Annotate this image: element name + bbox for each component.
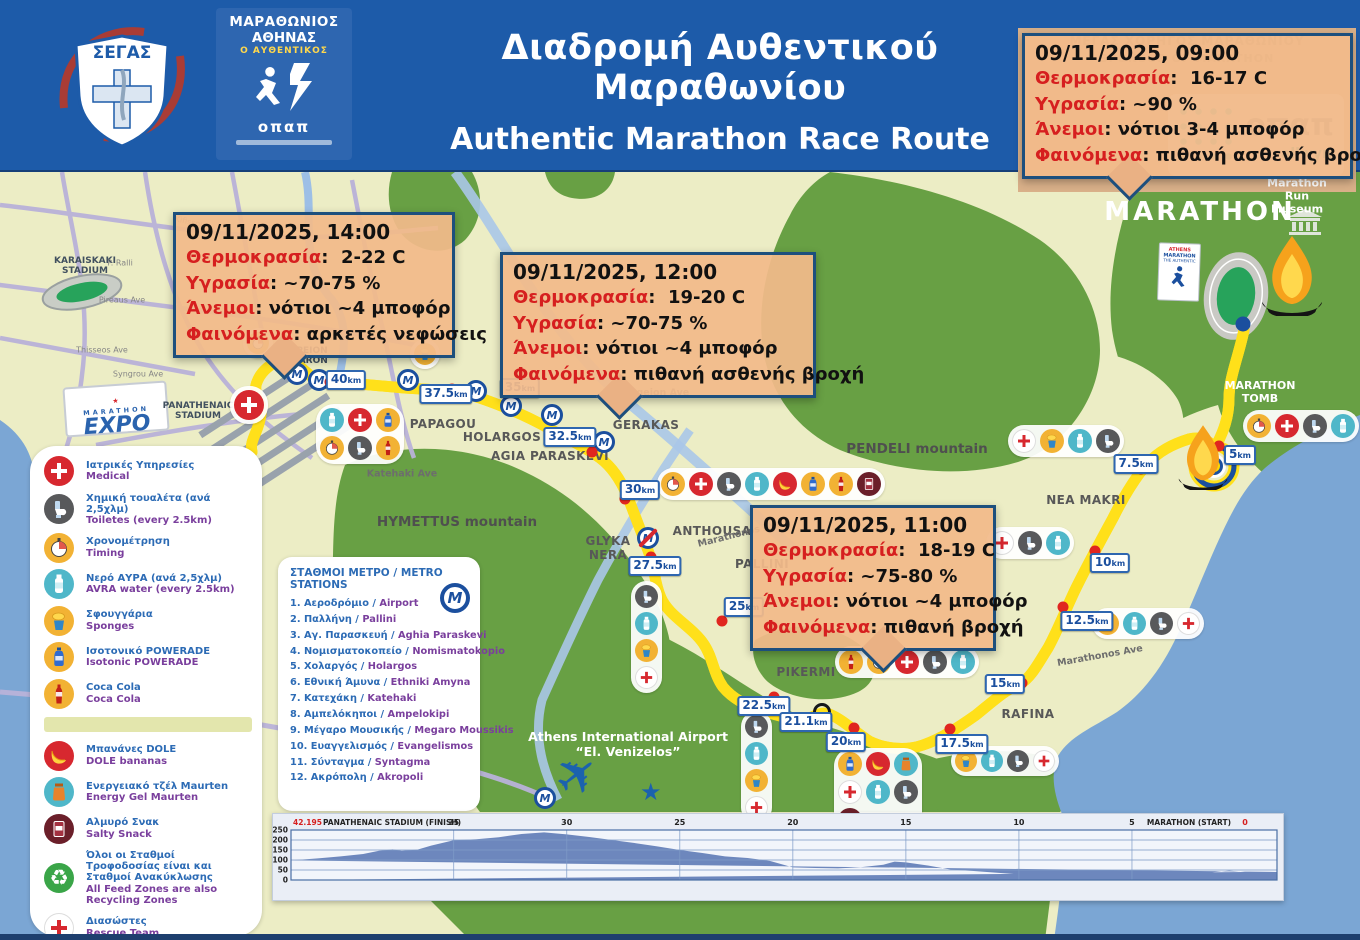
weather-row-humidity: Υγρασία: ~90 % <box>1035 92 1340 118</box>
weather-datetime: 09/11/2025, 14:00 <box>186 220 442 244</box>
svg-text:30: 30 <box>561 818 573 827</box>
toilet-icon <box>44 494 74 524</box>
medical-icon <box>1033 750 1055 772</box>
metro-station-icon: M <box>397 369 419 391</box>
toilet-icon <box>1018 531 1042 555</box>
legend-item-banana: Μπανάνες DOLEDOLE bananas <box>44 741 262 771</box>
legend-label-gr: Νερό ΑΥΡΑ (ανά 2,5χλμ) <box>86 573 244 584</box>
weather-row-temperature: Θερμοκρασία: 19-20 C <box>513 285 803 311</box>
km-marker-37.5: 37.5km <box>419 384 472 404</box>
race-logo-line1: ΜΑΡΑΘΩΝΙΟΣ <box>216 14 352 30</box>
feed-station <box>986 527 1074 559</box>
toilet-icon <box>348 436 372 460</box>
toilet-icon <box>745 715 768 738</box>
km-marker-21.1: 21.1km <box>779 712 832 732</box>
legend-item-timing: ΧρονομέτρησηTiming <box>44 533 262 563</box>
svg-text:42.195: 42.195 <box>293 818 322 827</box>
weather-row-temperature: Θερμοκρασία: 2-22 C <box>186 245 442 271</box>
metro-station-row: 10. Ευαγγελισμός / Evangelismos <box>290 739 472 755</box>
legend-item-gel: Ενεργειακό τζέλ MaurtenEnergy Gel Maurte… <box>44 777 262 807</box>
medical-icon <box>689 472 713 496</box>
expo-star-icon: ★ <box>112 397 119 405</box>
cola-icon <box>839 650 863 674</box>
race-logo-tagline <box>236 140 332 145</box>
metro-logo-icon: M <box>440 583 470 613</box>
weather-row-humidity: Υγρασία: ~70-75 % <box>186 271 442 297</box>
metro-station-row: 7. Κατεχάκη / Katehaki <box>290 691 472 707</box>
water-icon <box>320 408 344 432</box>
elevation-profile-chart: 05010015020025042.195PANATHENAIC STADIUM… <box>272 813 1284 901</box>
weather-row-phenomena: Φαινόμενα: αρκετές νεφώσεις <box>186 322 442 348</box>
km-marker-32.5: 32.5km <box>543 427 596 447</box>
km-marker-30: 30km <box>620 480 660 500</box>
toilet-icon <box>635 585 658 608</box>
svg-text:15: 15 <box>900 818 912 827</box>
sponge-icon <box>745 769 768 792</box>
sponge-icon <box>635 639 658 662</box>
runner-icon <box>216 56 352 118</box>
race-logo-line3: Ο ΑΥΘΕΝΤΙΚΟΣ <box>216 46 352 56</box>
closed-station-slash-icon <box>638 528 658 548</box>
legend-item-water: Νερό ΑΥΡΑ (ανά 2,5χλμ)AVRA water (every … <box>44 569 262 599</box>
weather-row-humidity: Υγρασία: ~75-80 % <box>763 564 983 590</box>
legend-label-gr: Χρονομέτρηση <box>86 536 244 547</box>
svg-text:35: 35 <box>448 818 460 827</box>
medical-icon <box>635 666 658 689</box>
timing-icon <box>1247 414 1271 438</box>
weather-box-1200: 09/11/2025, 12:00Θερμοκρασία: 19-20 CΥγρ… <box>500 252 816 398</box>
recycle-icon: ♻ <box>44 863 74 893</box>
feed-station <box>1008 425 1124 457</box>
feed-station <box>1243 410 1359 442</box>
legend-label-gr: Όλοι οι Σταθμοί Τροφοδοσίας είναι και Στ… <box>86 850 244 884</box>
sponge-icon <box>44 606 74 636</box>
marathon-expo-badge: ★ MARATHON EXPO <box>62 380 169 437</box>
weather-datetime: 09/11/2025, 12:00 <box>513 260 803 284</box>
water-icon <box>951 650 975 674</box>
legend-label-en: DOLE bananas <box>86 756 244 767</box>
sponge-icon <box>1040 429 1064 453</box>
legend-label-en: Toiletes (every 2.5km) <box>86 515 244 526</box>
metro-station-row: 3. Αγ. Παρασκευή / Aghia Paraskevi <box>290 628 472 644</box>
timing-icon <box>320 436 344 460</box>
toilet-icon <box>1303 414 1327 438</box>
legend-label-en: Sponges <box>86 621 244 632</box>
metro-station-row: 11. Σύνταγμα / Syntagma <box>290 755 472 771</box>
metro-station-row: 8. Αμπελόκηποι / Ampelokipi <box>290 707 472 723</box>
km-marker-12.5: 12.5km <box>1060 611 1113 631</box>
marathon-route-poster: ΣΕΓΑΣ ΜΑΡΑΘΩΝΙΟΣ ΑΘΗΝΑΣ Ο ΑΥΘΕΝΤΙΚΟΣ οπα… <box>0 0 1360 940</box>
km-marker-7.5: 7.5km <box>1114 454 1159 474</box>
metro-stations-panel: ΣΤΑΘΜΟΙ ΜΕΤΡΟ / METRO STATIONS M 1. Αερο… <box>278 557 480 811</box>
feed-station <box>230 386 268 424</box>
feed-point-dot <box>945 724 956 735</box>
water-icon <box>44 569 74 599</box>
powerade-icon <box>44 642 74 672</box>
svg-text:20: 20 <box>787 818 799 827</box>
water-icon <box>1068 429 1092 453</box>
legend-label-en: AVRA water (every 2.5km) <box>86 584 244 595</box>
svg-text:50: 50 <box>278 866 288 875</box>
timing-icon <box>661 472 685 496</box>
svg-text:PANATHENAIC STADIUM (FINISH): PANATHENAIC STADIUM (FINISH) <box>323 818 461 827</box>
svg-text:5: 5 <box>1129 818 1135 827</box>
legend-label-en: Coca Cola <box>86 694 244 705</box>
medical-icon <box>348 408 372 432</box>
title-english: Authentic Marathon Race Route <box>400 122 1040 157</box>
weather-box-0900: 09/11/2025, 09:00Θερμοκρασία: 16-17 CΥγρ… <box>1022 33 1353 179</box>
medical-icon <box>1177 612 1200 635</box>
race-logo-line2: ΑΘΗΝΑΣ <box>216 30 352 46</box>
legend-label-gr: Χημική τουαλέτα (ανά 2,5χλμ) <box>86 493 244 515</box>
segas-logo: ΣΕΓΑΣ <box>46 10 198 158</box>
legend-label-en: All Feed Zones are also Recycling Zones <box>86 884 244 906</box>
feed-point-dot <box>717 616 728 627</box>
weather-datetime: 09/11/2025, 09:00 <box>1035 41 1340 65</box>
metro-station-row: 6. Εθνική Άμυνα / Ethniki Amyna <box>290 675 472 691</box>
legend-label-gr: Μπανάνες DOLE <box>86 744 244 755</box>
toilet-icon <box>923 650 947 674</box>
runner-icon <box>1167 263 1190 290</box>
feed-station <box>316 404 404 464</box>
medical-icon <box>838 780 862 804</box>
title-greek: Διαδρομή Αυθεντικού Μαραθωνίου <box>400 28 1040 108</box>
legend-label-en: Salty Snack <box>86 829 244 840</box>
toilet-icon <box>1096 429 1120 453</box>
metro-station-row: 5. Χολαργός / Holargos <box>290 659 472 675</box>
metro-station-icon: M <box>534 787 556 809</box>
legend-label-gr: Διασώστες <box>86 916 244 927</box>
poster-title: Διαδρομή Αυθεντικού Μαραθωνίου Authentic… <box>400 28 1040 157</box>
medical-icon <box>1275 414 1299 438</box>
weather-row-temperature: Θερμοκρασία: 16-17 C <box>1035 66 1340 92</box>
toilet-icon <box>1150 612 1173 635</box>
legend-label-gr: Αλμυρό Σνακ <box>86 817 244 828</box>
legend-item-powerade: Ισοτονικό POWERADEIsotonic POWERADE <box>44 642 262 672</box>
water-icon <box>635 612 658 635</box>
torch-icon-tomb <box>1177 422 1229 494</box>
svg-text:MARATHON (START): MARATHON (START) <box>1147 818 1231 827</box>
km-marker-40: 40km <box>326 370 366 390</box>
svg-text:25: 25 <box>674 818 686 827</box>
medical-icon <box>44 456 74 486</box>
svg-text:10: 10 <box>1013 818 1025 827</box>
banana-icon <box>773 472 797 496</box>
water-icon <box>1046 531 1070 555</box>
cola-icon <box>376 436 400 460</box>
water-icon <box>745 742 768 765</box>
banana-icon <box>866 752 890 776</box>
weather-row-wind: Άνεμοι: νότιοι ~4 μποφόρ <box>186 296 442 322</box>
powerade-icon <box>801 472 825 496</box>
legend-divider <box>44 717 252 732</box>
water-icon <box>1331 414 1355 438</box>
km-marker-20: 20km <box>826 732 866 752</box>
weather-row-phenomena: Φαινόμενα: πιθανή ασθενής βροχή <box>513 362 803 388</box>
svg-text:250: 250 <box>273 826 288 835</box>
legend-item-toilet: Χημική τουαλέτα (ανά 2,5χλμ)Toiletes (ev… <box>44 493 262 527</box>
snack-icon <box>44 814 74 844</box>
weather-row-wind: Άνεμοι: νότιοι ~4 μποφόρ <box>763 589 983 615</box>
metro-station-row: 9. Μέγαρο Μουσικής / Megaro Moussikis <box>290 723 472 739</box>
medical-icon <box>234 390 264 420</box>
weather-row-wind: Άνεμοι: νότιοι 3-4 μποφόρ <box>1035 117 1340 143</box>
svg-text:150: 150 <box>273 846 288 855</box>
cola-icon <box>829 472 853 496</box>
opap-brand: οπαπ <box>216 118 352 136</box>
water-icon <box>1123 612 1146 635</box>
legend-panel: Ιατρικές ΥπηρεσίεςMedicalΧημική τουαλέτα… <box>30 446 262 936</box>
metro-station-row: 12. Ακρόπολη / Akropoli <box>290 770 472 786</box>
banana-icon <box>44 741 74 771</box>
legend-item-medical: Ιατρικές ΥπηρεσίεςMedical <box>44 456 262 486</box>
torch-icon-large <box>1260 232 1324 320</box>
snack-icon <box>857 472 881 496</box>
bottom-border <box>0 934 1360 940</box>
segas-text: ΣΕΓΑΣ <box>93 43 152 63</box>
feed-point-dot <box>587 447 598 458</box>
toilet-icon <box>1007 750 1029 772</box>
toilet-icon <box>717 472 741 496</box>
legend-label-gr: Coca Cola <box>86 682 244 693</box>
powerade-icon <box>838 752 862 776</box>
legend-label-gr: Ιατρικές Υπηρεσίες <box>86 460 244 471</box>
athens-marathon-card: ATHENS MARATHON THE AUTHENTIC <box>1157 242 1201 301</box>
svg-text:200: 200 <box>273 836 288 845</box>
athens-marathon-logo: ΜΑΡΑΘΩΝΙΟΣ ΑΘΗΝΑΣ Ο ΑΥΘΕΝΤΙΚΟΣ οπαπ <box>216 8 352 160</box>
svg-text:0: 0 <box>1242 818 1248 827</box>
legend-label-gr: Ισοτονικό POWERADE <box>86 646 244 657</box>
airport-star-icon: ★ <box>640 778 662 806</box>
cola-icon <box>44 679 74 709</box>
legend-item-recycle: ♻Όλοι οι Σταθμοί Τροφοδοσίας είναι και Σ… <box>44 850 262 906</box>
metro-station-icon: M <box>637 527 659 549</box>
feed-station <box>741 711 772 823</box>
legend-label-en: Timing <box>86 548 244 559</box>
svg-text:100: 100 <box>273 856 288 865</box>
legend-label-en: Isotonic POWERADE <box>86 657 244 668</box>
km-marker-5: 5km <box>1224 445 1256 465</box>
km-marker-15: 15km <box>985 674 1025 694</box>
weather-box-1400: 09/11/2025, 14:00Θερμοκρασία: 2-22 CΥγρα… <box>173 212 455 358</box>
legend-label-en: Energy Gel Maurten <box>86 792 244 803</box>
start-point-dot <box>1236 317 1251 332</box>
metro-station-icon: M <box>500 395 522 417</box>
km-marker-10: 10km <box>1090 553 1130 573</box>
water-icon <box>866 780 890 804</box>
legend-label-gr: Ενεργειακό τζέλ Maurten <box>86 781 244 792</box>
feed-station <box>631 581 662 693</box>
gel-icon <box>894 752 918 776</box>
km-marker-17.5: 17.5km <box>935 734 988 754</box>
legend-label-en: Medical <box>86 471 244 482</box>
weather-row-humidity: Υγρασία: ~70-75 % <box>513 311 803 337</box>
gel-icon <box>44 777 74 807</box>
legend-label-gr: Σφουγγάρια <box>86 609 244 620</box>
metro-station-row: 2. Παλλήνη / Pallini <box>290 612 472 628</box>
svg-text:0: 0 <box>283 876 288 885</box>
metro-station-row: 4. Νομισματοκοπείο / Nomismatokopio <box>290 644 472 660</box>
legend-item-cola: Coca ColaCoca Cola <box>44 679 262 709</box>
legend-item-snack: Αλμυρό ΣνακSalty Snack <box>44 814 262 844</box>
weather-row-phenomena: Φαινόμενα: πιθανή βροχή <box>763 615 983 641</box>
medical-icon <box>1012 429 1036 453</box>
feed-station <box>657 468 885 500</box>
weather-row-phenomena: Φαινόμενα: πιθανή ασθενής βροχή <box>1035 143 1340 169</box>
km-marker-27.5: 27.5km <box>628 556 681 576</box>
metro-station-icon: M <box>541 404 563 426</box>
timing-icon <box>44 533 74 563</box>
powerade-icon <box>376 408 400 432</box>
toilet-icon <box>894 780 918 804</box>
weather-row-wind: Άνεμοι: νότιοι ~4 μποφόρ <box>513 336 803 362</box>
weather-row-temperature: Θερμοκρασία: 18-19 C <box>763 538 983 564</box>
weather-datetime: 09/11/2025, 11:00 <box>763 513 983 537</box>
weather-box-1100: 09/11/2025, 11:00Θερμοκρασία: 18-19 CΥγρ… <box>750 505 996 651</box>
legend-item-sponge: ΣφουγγάριαSponges <box>44 606 262 636</box>
water-icon <box>745 472 769 496</box>
